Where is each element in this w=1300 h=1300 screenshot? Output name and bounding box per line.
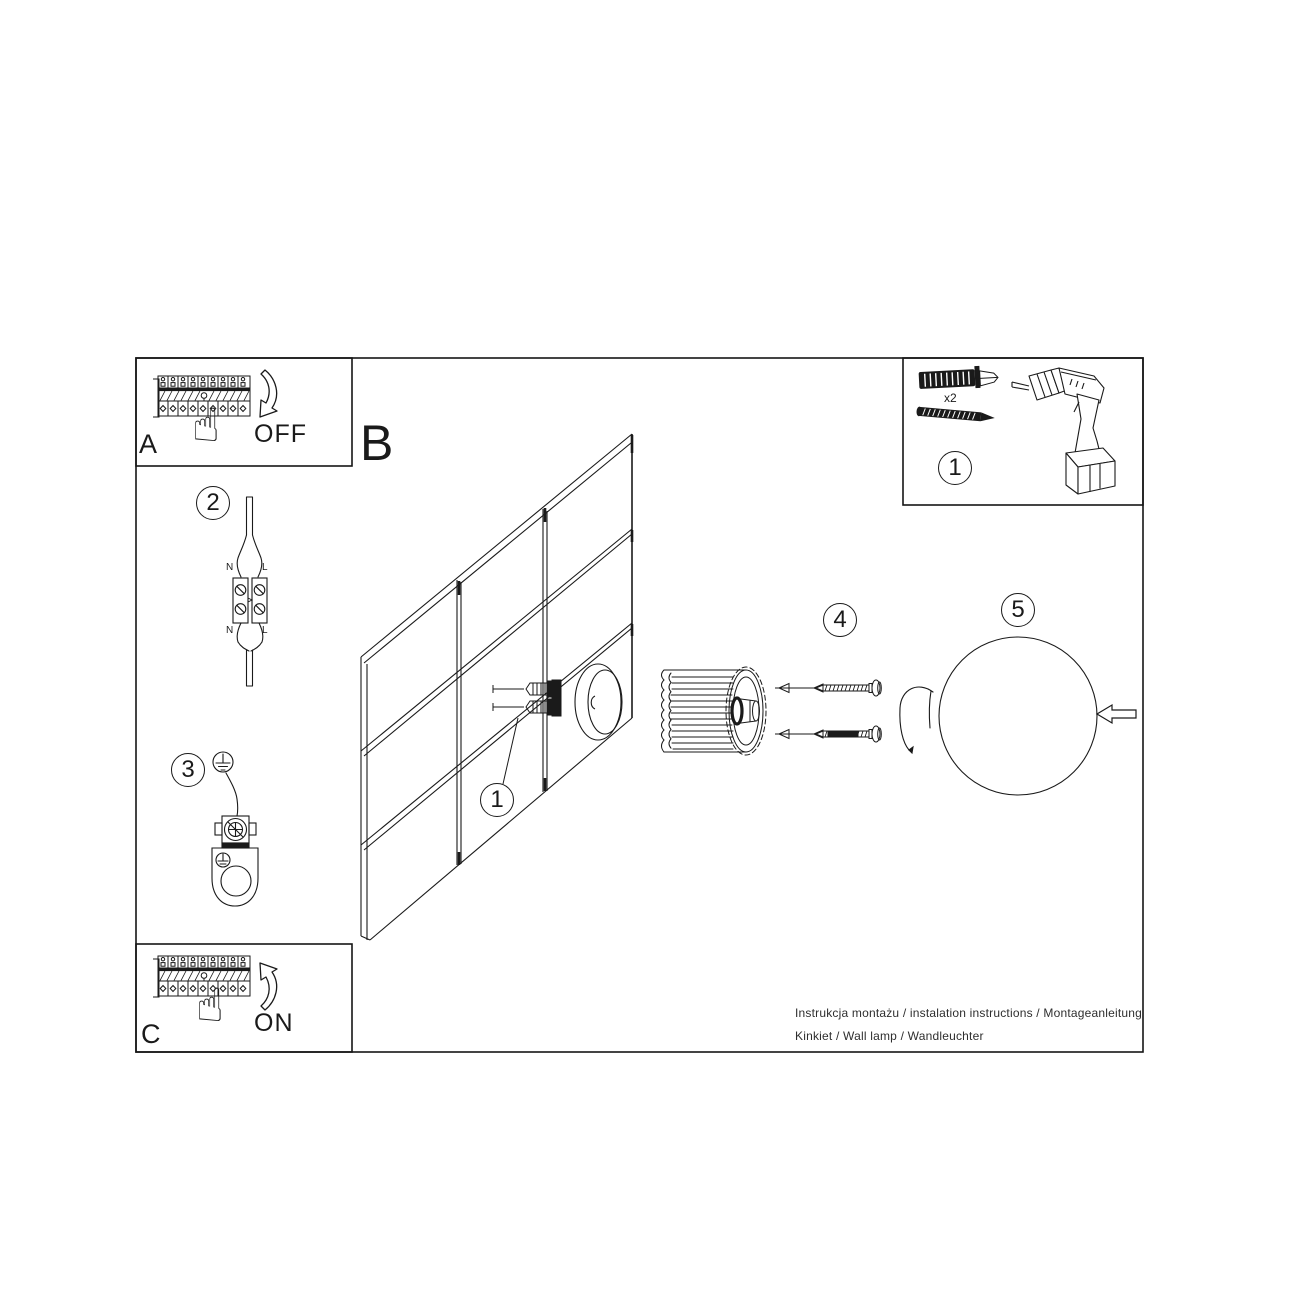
step-badge-5: 5	[1001, 593, 1035, 627]
cable-bottom	[247, 650, 253, 686]
on-label: ON	[254, 1009, 294, 1038]
switch-on-arrow-icon	[260, 963, 277, 1010]
step5-glass-ball	[900, 637, 1136, 795]
fluted-left-edge	[662, 670, 665, 752]
screw-top	[775, 680, 881, 696]
instruction-sheet: A OFF ☝ C ON ☝ B 2 3 1 4 5 1 x2 N L N L …	[0, 0, 1300, 1300]
drill-icon	[1012, 368, 1115, 494]
instruction-line-art	[0, 0, 1300, 1300]
off-label: OFF	[254, 420, 307, 449]
wall-plug-icon	[918, 365, 998, 391]
panel-c-label: C	[141, 1019, 161, 1050]
footer-instructions-line: Instrukcja montażu / instalation instruc…	[795, 1006, 1142, 1020]
earth-symbol-icon	[213, 752, 233, 772]
step4-screws	[775, 680, 881, 742]
bracket-hole	[221, 866, 251, 896]
wall-anchors	[493, 680, 561, 784]
step-badge-1-wall: 1	[480, 783, 514, 817]
section-b-label: B	[360, 414, 393, 472]
step-badge-3: 3	[171, 753, 205, 787]
wire-n-bottom-label: N	[226, 625, 233, 636]
step-badge-4: 4	[823, 603, 857, 637]
cable-top	[247, 497, 253, 535]
frames	[136, 358, 1143, 1052]
switch-off-arrow-icon	[260, 370, 277, 417]
earth-wire	[226, 773, 238, 816]
bracket-earth-screw-icon	[216, 853, 230, 867]
pointing-hand-icon: ☝	[196, 982, 224, 1028]
panel-a-label: A	[139, 429, 157, 460]
push-direction-arrow-icon	[1097, 705, 1136, 723]
lamp-socket	[732, 698, 760, 724]
mounting-bracket	[212, 848, 258, 906]
step1-leader-line	[503, 718, 518, 784]
tiled-wall	[361, 434, 632, 940]
outer-frame	[136, 358, 1143, 1052]
wire-l-bottom-label: L	[262, 625, 268, 636]
step-badge-2: 2	[196, 486, 230, 520]
tile-seam-vertical-1	[457, 580, 461, 865]
pointing-hand-icon: ☝	[192, 402, 220, 448]
wire-n-top-label: N	[226, 562, 233, 573]
wire-l-top-label: L	[262, 562, 268, 573]
anchor-quantity-label: x2	[944, 391, 957, 405]
glass-ball	[939, 637, 1097, 795]
screw-bottom	[775, 726, 881, 742]
step-badge-1-tools: 1	[938, 451, 972, 485]
screw-icon	[916, 406, 995, 422]
ball-neck-curve	[900, 687, 933, 750]
drum-ribs	[671, 677, 733, 749]
footer-product-line: Kinkiet / Wall lamp / Wandleuchter	[795, 1029, 984, 1043]
lamp-body	[662, 667, 767, 755]
step3-earth-diagram	[212, 752, 258, 906]
step2-wiring-diagram	[233, 497, 267, 686]
wall-canopy	[575, 664, 622, 740]
tile-seam-vertical-2	[543, 509, 547, 792]
